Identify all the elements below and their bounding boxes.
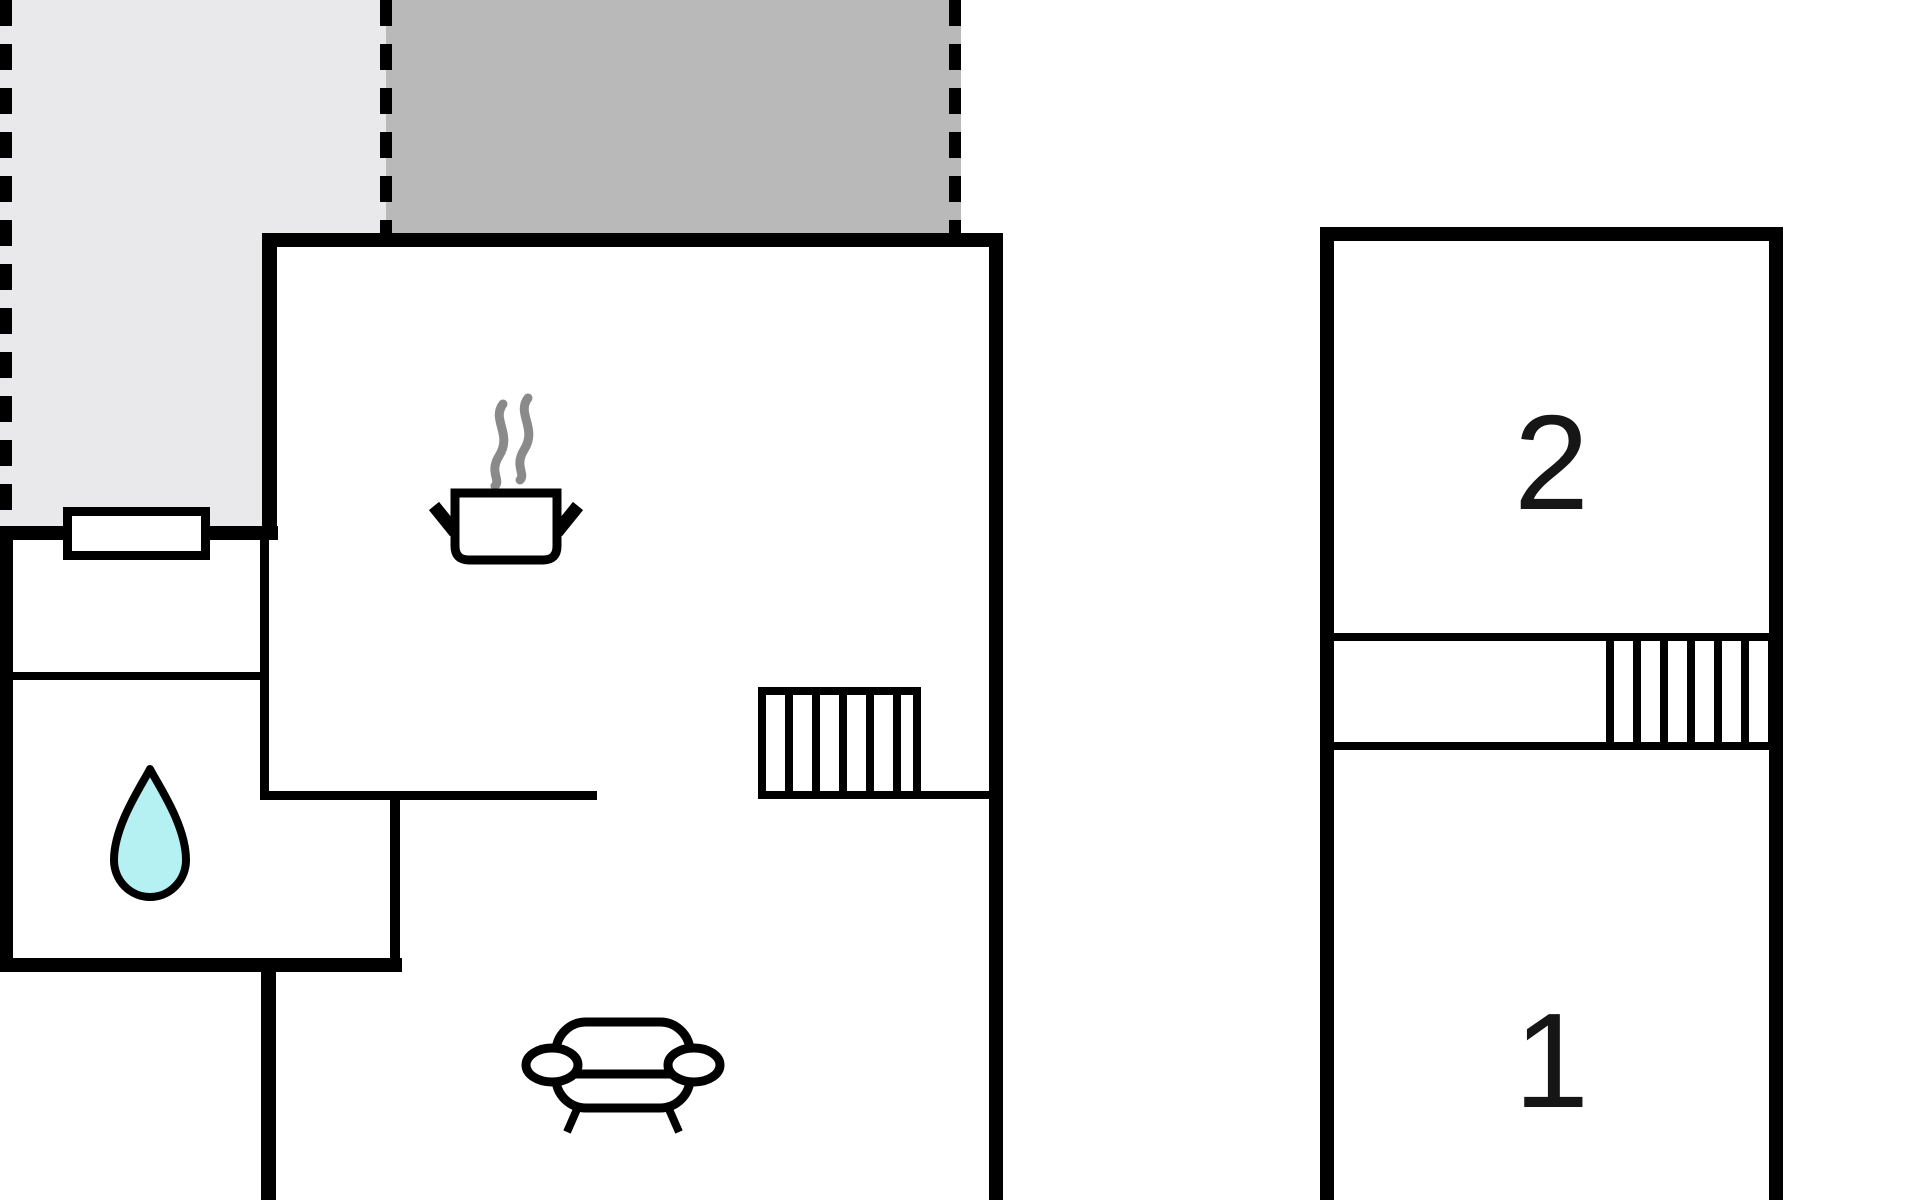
annex-wall-north [1320, 227, 1783, 241]
wall-kitchen-south [260, 791, 597, 800]
water-drop-icon [105, 763, 195, 903]
dashed-boundary-right [949, 0, 961, 233]
dashed-boundary-middle [380, 0, 392, 233]
wall-bathroom-north [0, 672, 268, 680]
wall-main-west-lower [261, 958, 276, 1200]
wall-utility-east [390, 791, 400, 972]
wall-bathroom-east [260, 540, 269, 800]
sofa-armrest-right [668, 1048, 720, 1082]
annex-landing-wall-top [1334, 633, 1769, 641]
room-number: 2 [1514, 395, 1589, 530]
terrace-area-dark [386, 0, 961, 233]
annex-staircase-icon [1606, 641, 1769, 742]
wall-stairs-landing [913, 791, 1003, 799]
floor-plan-canvas: 2 1 [0, 0, 1920, 1200]
terrace-area-light-top [0, 0, 386, 233]
annex-wall-east [1769, 227, 1783, 1200]
annex-wall-west [1320, 227, 1334, 1200]
cooking-pot-icon [425, 380, 590, 575]
room-label-lower: 1 [1334, 985, 1769, 1135]
room-number: 1 [1514, 993, 1589, 1128]
pot-body [455, 493, 557, 560]
wall-main-west-upper [262, 233, 277, 540]
window [63, 507, 210, 560]
steam-icon [520, 398, 529, 480]
wall-main-west [0, 526, 13, 972]
terrace-area-light-side [0, 233, 262, 526]
dashed-boundary-left [0, 0, 12, 527]
wall-main-north [262, 233, 1003, 247]
wall-main-east [989, 233, 1003, 1200]
main-staircase-icon [758, 687, 921, 799]
steam-icon [495, 404, 504, 486]
room-label-upper: 2 [1334, 387, 1769, 537]
sofa-icon [518, 1010, 728, 1140]
sofa-armrest-left [526, 1048, 578, 1082]
annex-landing-wall-bottom [1334, 742, 1769, 750]
wall-main-south-lower [0, 958, 402, 972]
